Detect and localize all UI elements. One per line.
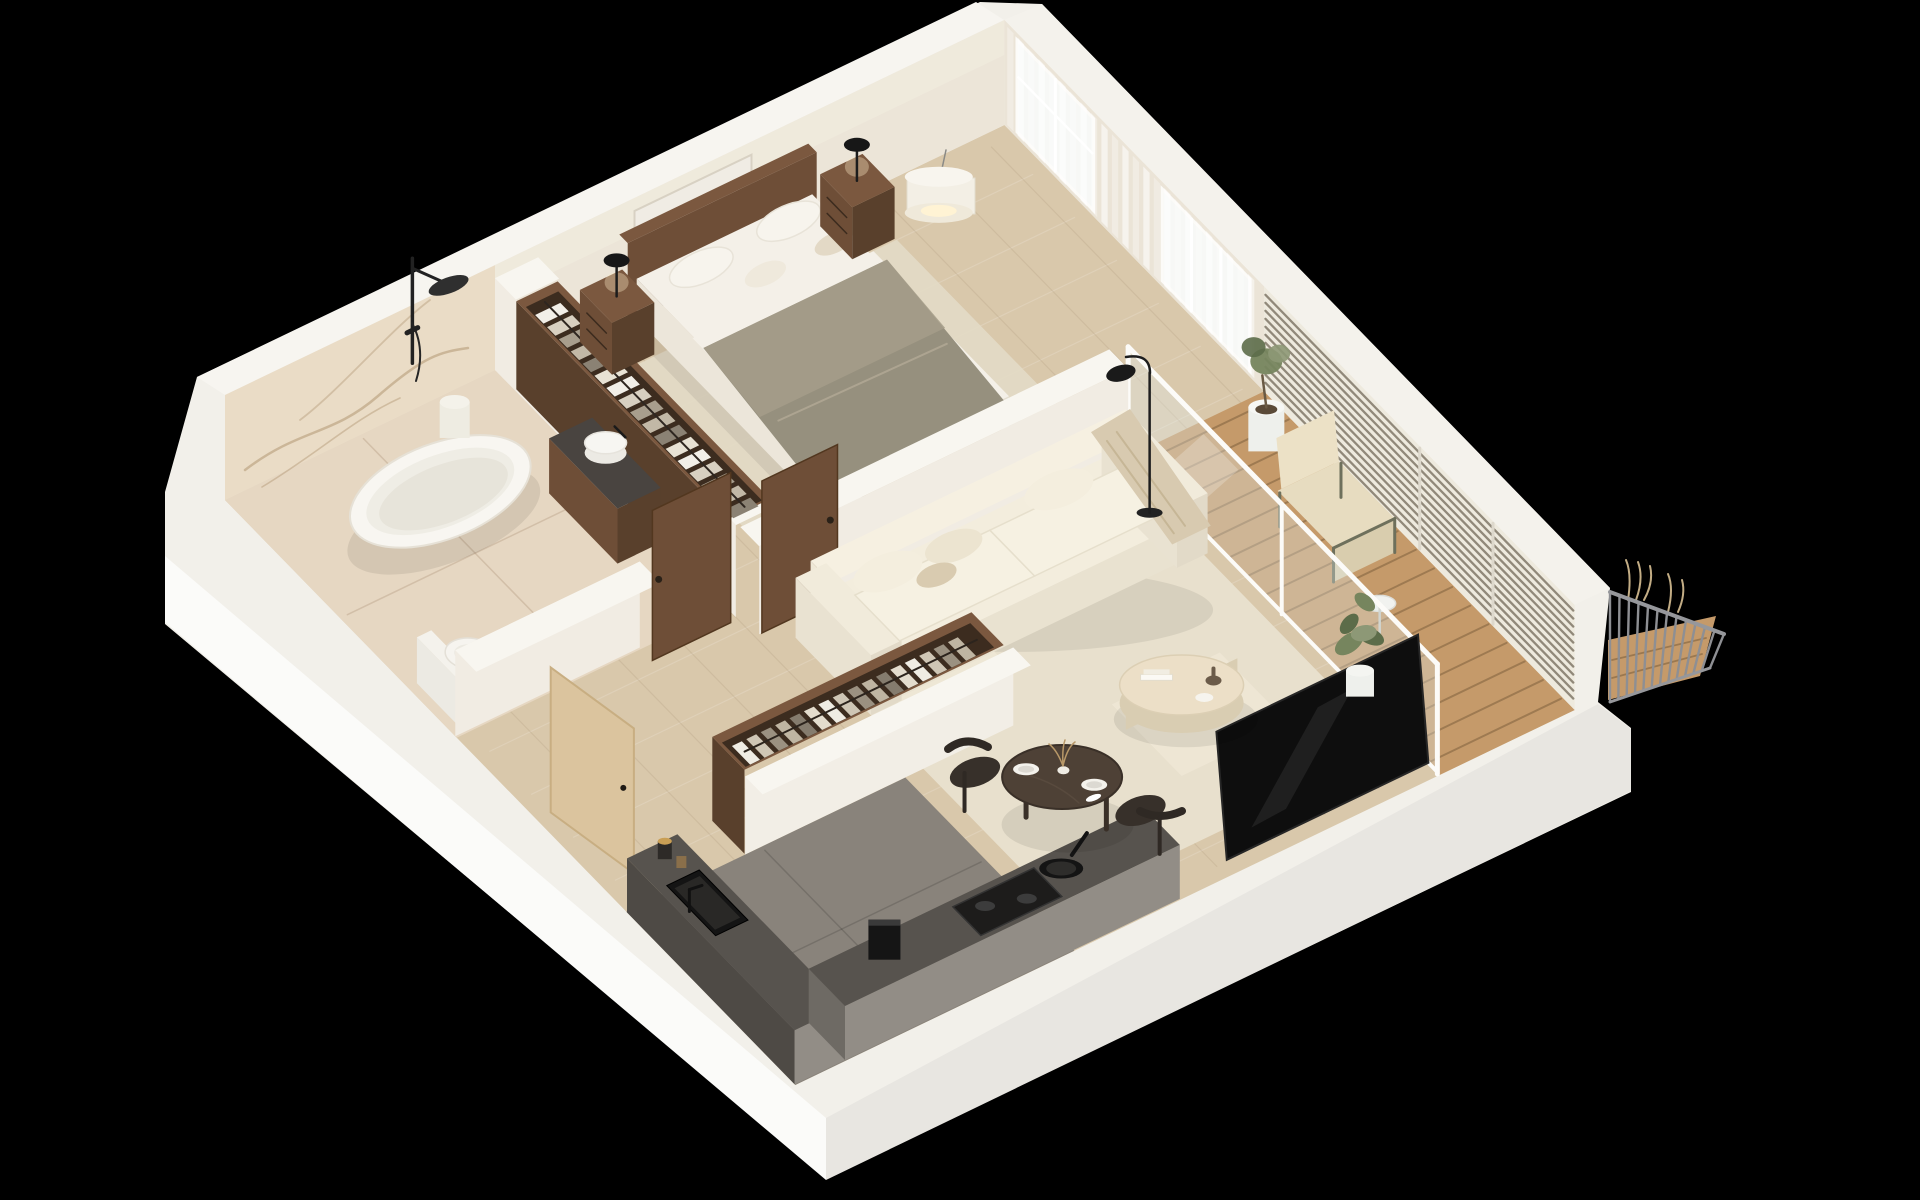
sheer-curtain bbox=[1227, 252, 1233, 357]
sheer-curtain bbox=[1143, 167, 1149, 271]
cooktop-ring bbox=[1017, 894, 1037, 904]
sheer-curtain bbox=[1039, 59, 1045, 163]
stacked-books bbox=[1144, 669, 1170, 674]
tree-foliage bbox=[1268, 345, 1290, 363]
jar-lid bbox=[658, 838, 672, 845]
door-handle bbox=[655, 576, 662, 583]
sheer-curtain bbox=[1018, 38, 1024, 143]
coffee-machine-top bbox=[868, 920, 900, 926]
cooktop-ring bbox=[975, 901, 995, 911]
plate-inner bbox=[1086, 781, 1102, 788]
coffee-table-top bbox=[1120, 655, 1244, 715]
stacked-books bbox=[1141, 674, 1173, 680]
pendant-glow bbox=[921, 205, 957, 217]
sheer-curtain bbox=[1049, 70, 1055, 175]
railing-bar bbox=[1618, 596, 1619, 700]
floor-plan-render bbox=[0, 0, 1920, 1200]
table-lamp-left bbox=[604, 253, 630, 267]
render-canvas bbox=[0, 0, 1920, 1200]
sheer-curtain bbox=[1217, 242, 1223, 346]
sheer-curtain bbox=[1112, 134, 1118, 238]
pendant-top bbox=[905, 167, 973, 187]
table-lamp-right bbox=[844, 138, 870, 152]
sheer-curtain bbox=[1007, 27, 1013, 131]
storage-jar-small bbox=[676, 856, 686, 868]
sheer-curtain bbox=[1101, 124, 1107, 229]
flower-vase bbox=[1057, 766, 1069, 774]
plant-pot-top bbox=[1346, 665, 1374, 677]
laundry-basket-top bbox=[440, 395, 470, 409]
sheer-curtain bbox=[1175, 199, 1181, 304]
sheer-curtain bbox=[1133, 156, 1139, 260]
sheer-curtain bbox=[1185, 210, 1191, 314]
sheer-curtain bbox=[1091, 113, 1097, 218]
sheer-curtain bbox=[1081, 102, 1087, 206]
door-handle bbox=[827, 517, 834, 524]
sheer-curtain bbox=[1154, 177, 1160, 282]
sheer-curtain bbox=[1164, 188, 1170, 292]
sheer-curtain bbox=[1196, 220, 1202, 324]
pan-inner bbox=[1046, 862, 1076, 876]
sheer-curtain bbox=[1238, 263, 1244, 367]
entry-door-handle bbox=[620, 785, 626, 791]
sheer-curtain bbox=[1070, 91, 1076, 196]
vessel-sink bbox=[585, 432, 627, 454]
plate-inner bbox=[1018, 766, 1034, 773]
tree-foliage bbox=[1242, 337, 1266, 357]
sheer-curtain bbox=[1060, 81, 1066, 185]
sheer-curtain bbox=[1122, 145, 1128, 250]
sheer-curtain bbox=[1206, 231, 1212, 336]
table-bowl bbox=[1195, 693, 1213, 702]
sheer-curtain bbox=[1028, 48, 1034, 152]
